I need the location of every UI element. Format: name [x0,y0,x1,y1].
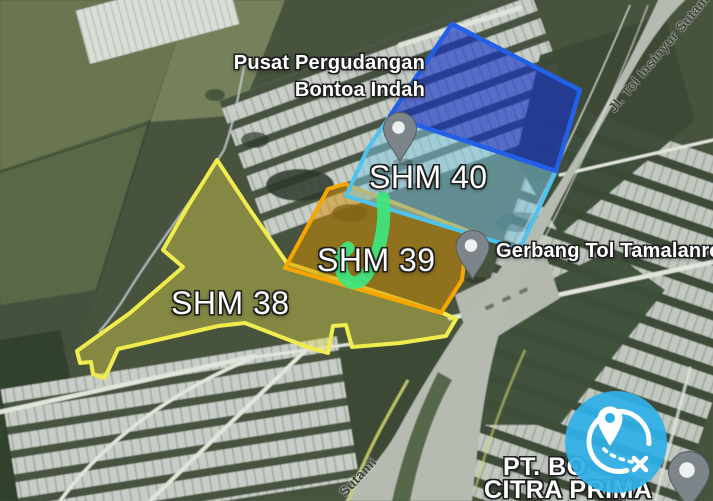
route-locate-button[interactable] [565,391,667,493]
satellite-map[interactable]: Pusat Pergudangan Bontoa Indah SHM 40 SH… [0,0,713,501]
locate-button-layer [0,0,713,501]
